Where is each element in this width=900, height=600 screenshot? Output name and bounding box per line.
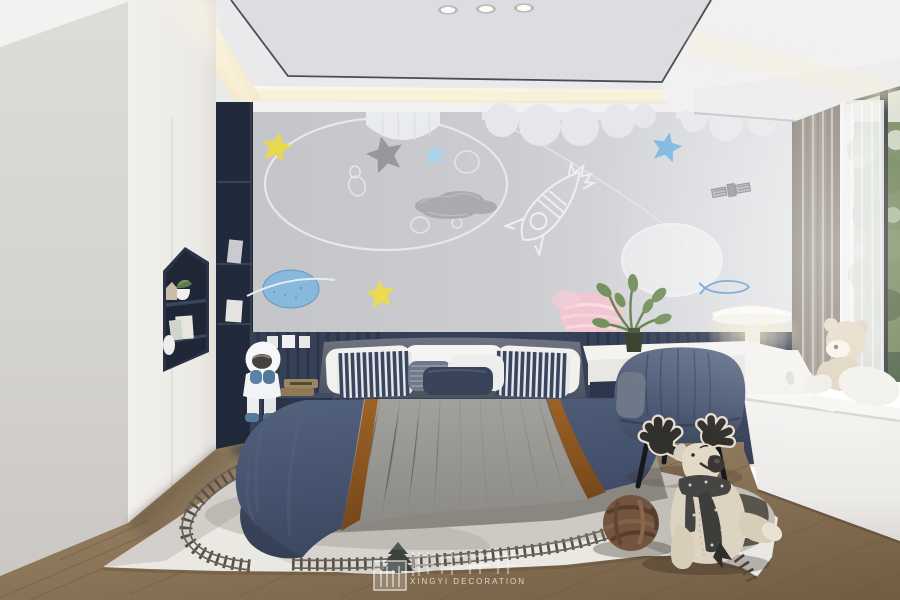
svg-text:XINGYI DECORATION: XINGYI DECORATION: [410, 577, 526, 586]
